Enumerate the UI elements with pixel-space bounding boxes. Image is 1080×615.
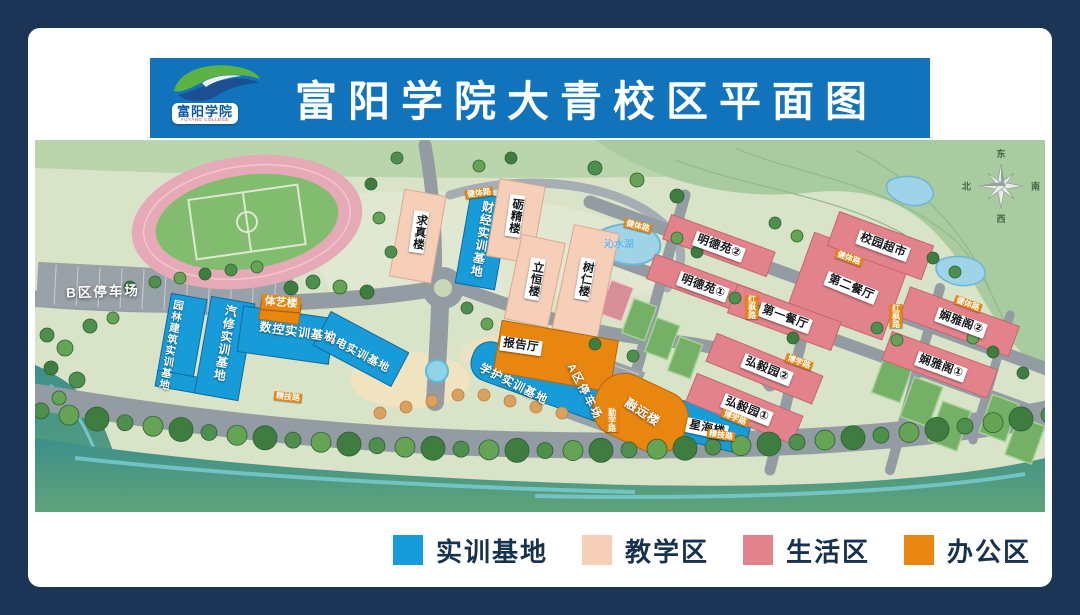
legend-label-training: 实训基地 — [436, 532, 548, 569]
campus-map: B区停车场 A区停车场 园林建筑实训基地 汽修实训基地 数控实训基地 机电实训基… — [35, 140, 1045, 512]
header-bar: 富阳学院 FUYANG COLLEGE 富阳学院大青校区平面图 — [150, 58, 930, 138]
road-label-hongfeng-1: 红枫路 — [889, 304, 902, 328]
college-logo: 富阳学院 FUYANG COLLEGE — [162, 61, 272, 135]
compass-rose-icon — [977, 162, 1025, 210]
poster-panel: 富阳学院 FUYANG COLLEGE 富阳学院大青校区平面图 — [28, 28, 1052, 587]
b-parking-label: B区停车场 — [66, 283, 140, 301]
legend-swatch-training — [393, 535, 423, 565]
legend-item-office: 办公区 — [904, 532, 1031, 569]
legend-swatch-office — [904, 535, 934, 565]
legend-label-living: 生活区 — [786, 532, 870, 569]
legend-label-teaching: 教学区 — [625, 532, 709, 569]
compass-south: 南 — [1031, 180, 1040, 193]
legend-swatch-teaching — [582, 535, 612, 565]
compass: 东 南 西 北 — [962, 147, 1040, 225]
lake-label: 沁水湖 — [604, 239, 634, 251]
legend-item-living: 生活区 — [743, 532, 870, 569]
logo-name-en: FUYANG COLLEGE — [177, 118, 233, 123]
legend-item-teaching: 教学区 — [582, 532, 709, 569]
page-title: 富阳学院大青校区平面图 — [272, 68, 890, 129]
compass-west: 西 — [996, 212, 1005, 225]
compass-east: 东 — [996, 147, 1005, 160]
legend-label-office: 办公区 — [947, 532, 1031, 569]
legend-item-training: 实训基地 — [393, 532, 548, 569]
roundabout-center — [434, 279, 452, 297]
legend-swatch-living — [743, 535, 773, 565]
logo-text-box: 富阳学院 FUYANG COLLEGE — [172, 103, 238, 124]
compass-north: 北 — [962, 180, 971, 193]
road-label-qinxue: 勤学路 — [605, 408, 618, 432]
road-label-hongfeng-2: 红枫路 — [745, 295, 758, 319]
fountain — [426, 360, 448, 382]
legend: 实训基地 教学区 生活区 办公区 — [35, 526, 1045, 574]
